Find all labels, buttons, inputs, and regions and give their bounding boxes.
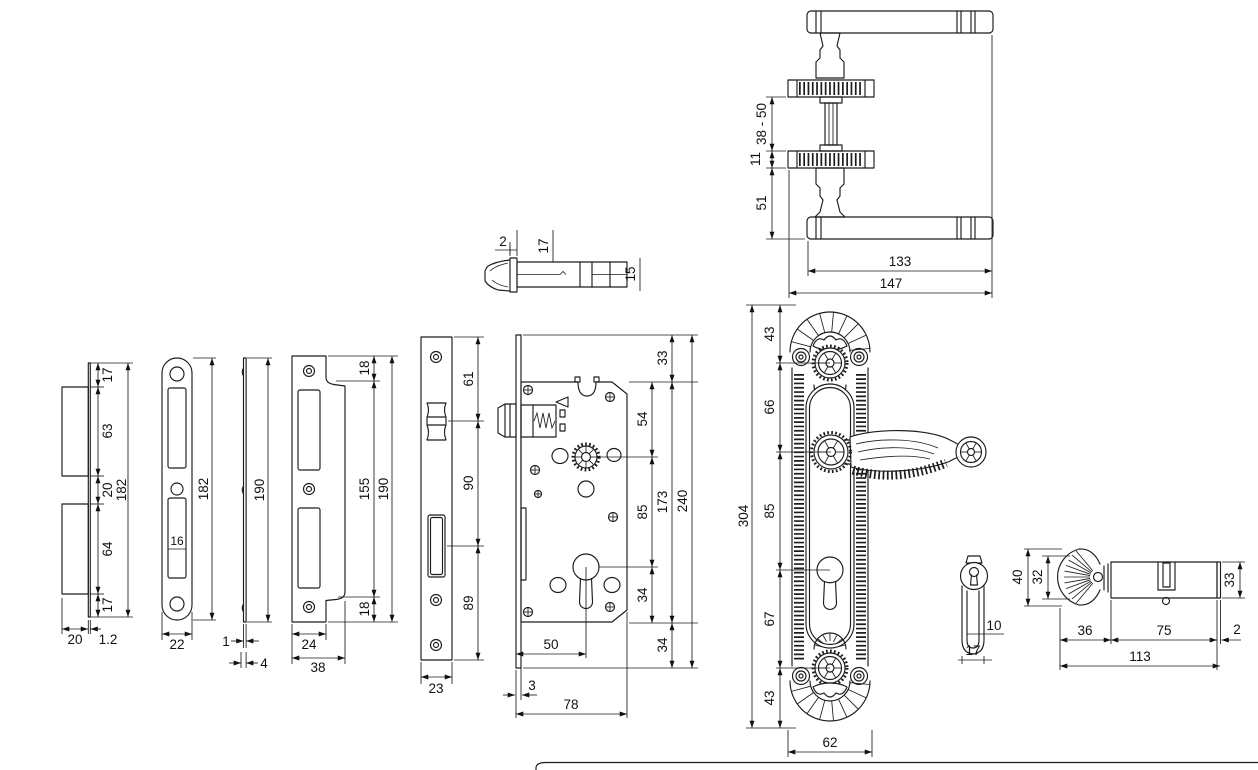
escutcheon-front-view: 43 66 85 67 43 304 62 [736,305,986,757]
dim-knob-40: 40 [1010,569,1025,584]
dim-lip-4: 4 [260,656,268,671]
lock-set-technical-drawing: 17 63 20 64 17 182 20 1.2 16 182 22 [0,0,1258,770]
dim-width-62: 62 [822,735,837,750]
dim-61: 61 [461,371,476,386]
scroll-ornament [851,349,868,366]
dim-body-75: 75 [1156,623,1171,638]
dim-seg5: 17 [100,597,115,612]
upper-neck [816,33,844,78]
spring-arm [556,397,568,407]
latch-slot [168,388,186,468]
lock-case-outline [521,382,627,622]
lipped-strike-plate-view: 18 155 18 190 24 38 [292,356,398,675]
dim-bottom-fan-43: 43 [762,690,777,705]
deadbolt-slot [298,508,320,588]
latch-opening [427,403,446,440]
dim-90: 90 [461,475,476,490]
strike-box-upper [62,387,88,476]
spindle-hub [573,444,599,470]
dim-body-33: 33 [1222,572,1237,587]
dim-seg2: 63 [100,423,115,438]
screw-hole [170,367,184,381]
fixing-hole [604,578,620,593]
dim-34-bottom: 34 [655,637,670,653]
lipped-strike-outline [292,356,345,622]
thumb-turn-knob [1058,549,1103,605]
dim-51: 51 [754,195,769,210]
dim-flange-2: 2 [499,234,507,249]
dim-304: 304 [736,504,751,527]
dim-width-38: 38 [310,660,325,675]
dim-133: 133 [889,254,912,269]
dim-height-190: 190 [376,478,391,501]
dim-thickness-1: 1 [222,634,230,649]
handle-pair-view: 38 - 50 11 51 133 147 [748,11,993,298]
screw-hole [431,595,442,606]
latch-slot [298,390,320,470]
dim-spindle-range: 38 - 50 [754,103,769,145]
screw-hole [304,484,315,495]
dim-width-23: 23 [428,681,443,696]
fixing-hole [607,449,621,462]
latch-spring [534,413,555,428]
lock-body-view: 54 85 34 33 173 34 240 50 3 78 [498,335,698,718]
dim-147: 147 [880,276,903,291]
dim-width-24: 24 [301,637,317,652]
upper-rose [788,80,874,97]
scroll-ornament [793,668,810,685]
dim-173: 173 [655,491,670,514]
dim-cam-ring-2: 2 [1233,622,1241,637]
dim-overall-113: 113 [1129,649,1151,664]
bottom-fan-ornament [790,681,870,721]
dim-89: 89 [461,595,476,610]
deadbolt-edge [521,508,526,580]
lower-rose [788,151,874,168]
dim-depth-78: 78 [563,697,578,712]
upper-lever [807,11,993,33]
dim-85: 85 [762,503,777,518]
sheet-border [536,763,1258,770]
fixing-hole [552,449,568,464]
top-fan-ornament [790,312,870,352]
faceplate-outline [421,337,452,660]
dim-slot-width: 16 [170,534,184,548]
dim-bottom-tab: 18 [357,601,372,616]
dim-34: 34 [635,587,650,603]
strike-box-side-view: 17 63 20 64 17 182 20 1.2 [62,363,133,647]
dim-height-190: 190 [252,479,267,502]
screw-hole [171,483,183,495]
dim-top-fan-43: 43 [762,326,777,341]
dim-lip-3: 3 [528,678,536,693]
dim-33: 33 [655,350,670,365]
hole [578,481,594,497]
dim-inner-10: 10 [986,618,1001,633]
dim-top-tab: 18 [357,360,372,375]
dim-rose-11: 11 [748,152,763,166]
latch-bolt [498,404,516,437]
case-tab [594,377,599,382]
dim-67: 67 [762,611,777,626]
dim-knob-inner-32: 32 [1030,569,1045,584]
dim-total-182: 182 [114,479,129,502]
dim-backset-50: 50 [543,637,558,652]
dim-seg4: 64 [100,541,115,557]
spindle-plate [820,97,842,103]
dim-height-182: 182 [196,478,211,501]
strike-box-lower [62,504,88,594]
dim-54: 54 [635,411,650,427]
cylinder-view: 40 32 33 36 75 2 113 [1010,549,1245,670]
dim-seg3: 20 [100,482,115,497]
flat-plate-edge [244,358,247,622]
dim-15: 15 [623,266,638,281]
flat-plate-side-view: 190 1 4 [222,358,272,671]
dim-17: 17 [536,238,551,253]
screw-hole [170,597,184,611]
spindle-plate [820,145,842,151]
latch-bolt-side-view: 2 17 15 [485,230,640,292]
strike-plate-outline [162,358,192,620]
screw-hole [431,640,442,651]
latch-flange [510,258,517,292]
lower-neck [815,168,845,217]
lock-faceplate-edge [516,335,521,668]
scroll-ornament [851,668,868,685]
cam-slot [1163,563,1170,587]
screw-hole [304,602,315,613]
strike-plate-front-view: 16 182 22 [162,358,216,652]
lower-lever [807,217,993,239]
screw-hole [431,352,442,363]
case-tab [575,377,580,382]
dim-width-17: 17 [965,643,980,658]
dim-66: 66 [762,399,777,414]
dim-85: 85 [635,504,650,519]
dim-plate-thickness: 1.2 [99,632,118,647]
dim-seg1: 17 [100,367,115,382]
fixing-hole [550,578,566,593]
spindle [825,103,837,145]
dim-width-22: 22 [169,637,184,652]
dim-240: 240 [675,490,690,513]
lock-faceplate-view: 61 90 89 23 [421,337,484,696]
escutcheon-side-view: 10 17 [958,556,1004,664]
dim-box-depth: 20 [67,632,82,647]
case-screws [524,386,618,617]
dim-knob-36: 36 [1077,623,1092,638]
screw-hole [304,366,315,377]
cylinder-body [1111,562,1217,598]
technical-drawing-sheet: 17 63 20 64 17 182 20 1.2 16 182 22 [0,0,1258,770]
cam-ring [1217,562,1221,598]
dim-inner-155: 155 [357,478,372,501]
